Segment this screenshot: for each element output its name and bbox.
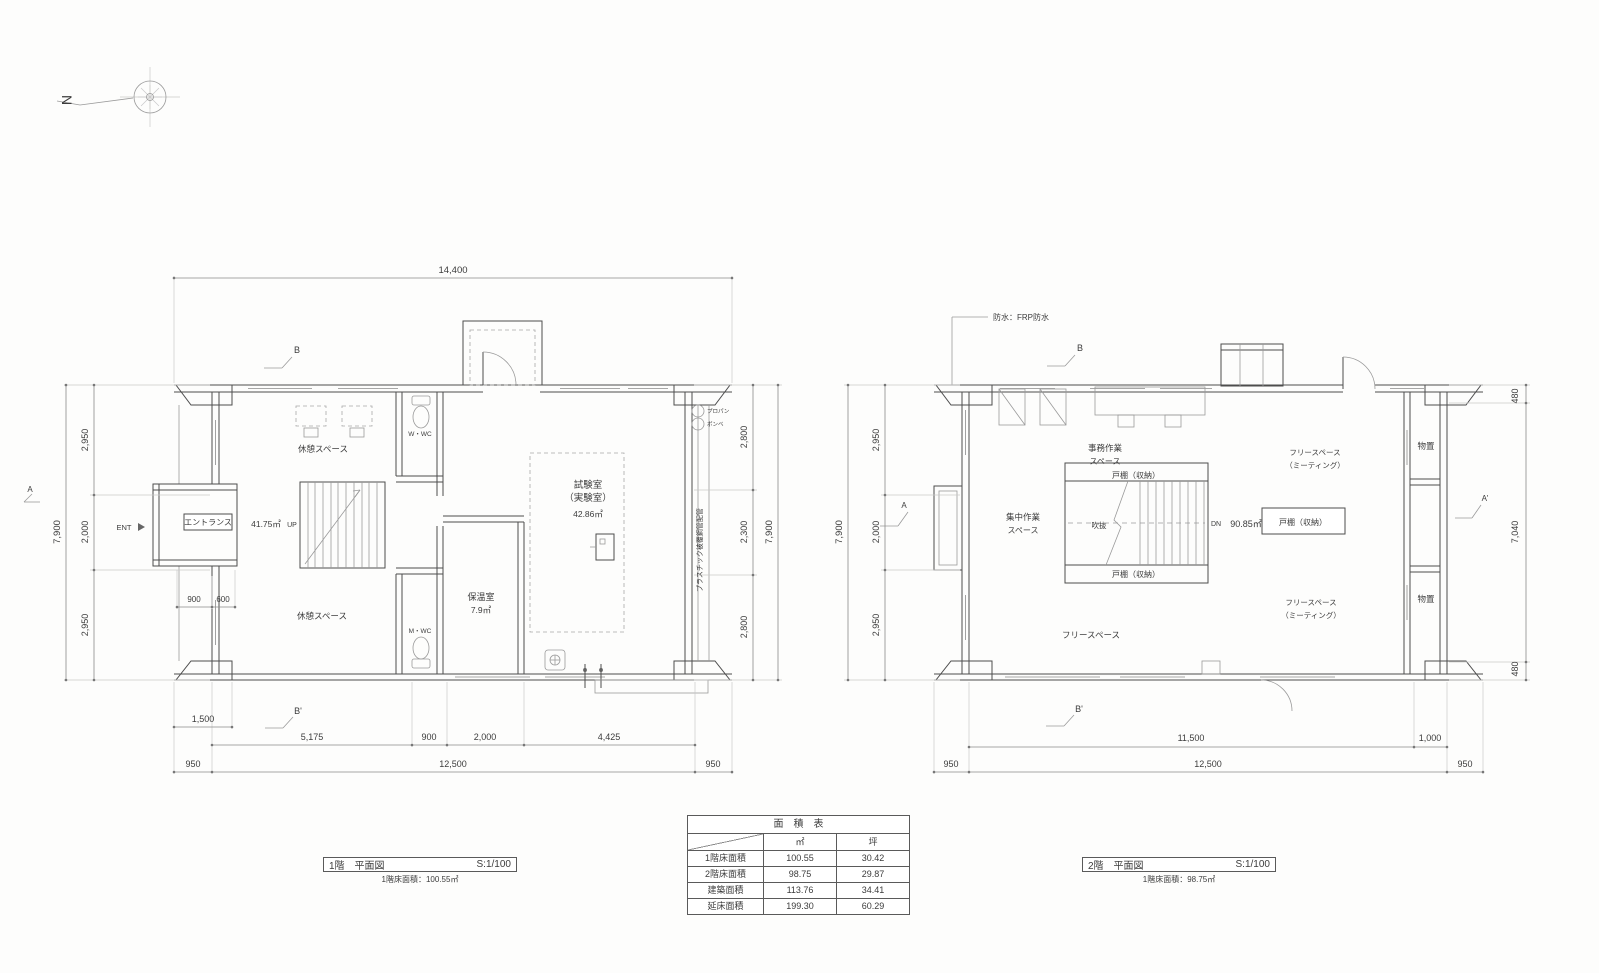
- label-free-meeting-bottom-1: フリースペース: [1285, 598, 1336, 607]
- dim-1f-top: 14,400: [438, 265, 467, 276]
- mark-2f-b-prime: B': [1075, 704, 1083, 714]
- label-propane-2: ボンベ: [707, 420, 724, 428]
- area-table-corner-cell: [688, 834, 763, 850]
- label-wc-w: W・WC: [408, 431, 432, 438]
- plan1f-dim-lines: [64, 276, 782, 774]
- label-office-1: 事務作業: [1088, 443, 1123, 453]
- label-1f-area: 41.75㎡: [251, 519, 281, 529]
- table-row: 建築面積 113.76 34.41: [688, 883, 909, 899]
- mark-2f-a: A: [901, 501, 907, 510]
- row-m2: 199.30: [763, 899, 836, 914]
- dim-1f-right-seg1: 2,800: [739, 426, 749, 449]
- mark-1f-a: A: [27, 485, 33, 494]
- label-lab-area: 42.86㎡: [573, 509, 603, 519]
- plan-1f: 14,400 7,900 2,950 2,000 2,950 2,800 2,3…: [24, 265, 782, 774]
- label-storage-bottom: 物置: [1417, 594, 1435, 604]
- label-up: UP: [287, 522, 297, 529]
- dim-1f-right-seg3: 2,800: [739, 616, 749, 639]
- plan2f-furniture: [999, 387, 1205, 427]
- label-storage-top: 物置: [1417, 441, 1435, 451]
- plan1f-walls: [174, 385, 732, 680]
- dim-1f-porch: 1,500: [192, 714, 215, 724]
- north-compass-icon: N: [57, 67, 180, 127]
- label-focus-1: 集中作業: [1006, 512, 1041, 522]
- plan2f-scale: S:1/100: [1236, 859, 1270, 870]
- plan-2f: 防水：FRP防水 B B' A A' 7,900 2,950 2,000 2,9…: [834, 312, 1530, 774]
- plan1f-title: 1階 平面図: [329, 857, 385, 872]
- label-warm-room: 保温室: [467, 591, 494, 602]
- mark-1f-b: B: [294, 345, 300, 355]
- label-office-2: スペース: [1089, 457, 1120, 466]
- row-tsubo: 30.42: [836, 851, 909, 866]
- plan1f-eave-lines: [179, 405, 709, 661]
- mark-2f-b: B: [1077, 343, 1083, 353]
- dim-1f-bottom-seg2: 900: [421, 732, 436, 742]
- dim-2f-left-seg1: 2,950: [871, 429, 881, 452]
- plan1f-scale: S:1/100: [477, 859, 511, 870]
- label-free-meeting-top-1: フリースペース: [1289, 448, 1340, 457]
- plan1f-stairs: [300, 482, 385, 568]
- label-free-space: フリースペース: [1062, 630, 1120, 640]
- dim-2f-left-total: 7,900: [834, 520, 845, 544]
- label-ent: ENT: [117, 523, 132, 532]
- table-row: 1階床面積 100.55 30.42: [688, 851, 909, 867]
- label-wc-m: M・WC: [409, 628, 432, 635]
- label-dn: DN: [1211, 521, 1221, 528]
- dim-1f-ent-seg2: 600: [216, 595, 230, 604]
- dim-1f-left-seg3: 2,950: [80, 614, 90, 637]
- drawing-sheet: N: [0, 0, 1599, 973]
- label-rest-bottom: 休憩スペース: [297, 611, 347, 621]
- dim-1f-eave-left: 950: [185, 759, 200, 769]
- mark-2f-a-prime: A': [1482, 494, 1489, 503]
- plan1f-furniture: [296, 406, 372, 437]
- table-row: 2階床面積 98.75 29.87: [688, 867, 909, 883]
- note-waterproof: 防水：FRP防水: [993, 312, 1049, 322]
- table-row: 延床面積 199.30 60.29: [688, 899, 909, 914]
- toilet-w-icon: [412, 396, 430, 428]
- row-label: 延床面積: [688, 899, 763, 914]
- dim-1f-eave-right: 950: [705, 759, 720, 769]
- label-propane-1: プロパン: [707, 408, 730, 415]
- plan2f-balcony: [1221, 344, 1283, 386]
- dim-1f-right-seg2: 2,300: [739, 521, 749, 544]
- label-free-meeting-top-2: （ミーティング）: [1285, 460, 1345, 470]
- area-table-col-tsubo: 坪: [836, 834, 909, 850]
- row-label: 1階床面積: [688, 851, 763, 866]
- dim-1f-right-total: 7,900: [764, 520, 775, 544]
- dim-2f-left-seg2: 2,000: [871, 521, 881, 544]
- area-table-title: 面 積 表: [688, 816, 909, 834]
- row-tsubo: 34.41: [836, 883, 909, 898]
- row-tsubo: 29.87: [836, 867, 909, 882]
- label-lab-2: （実験室）: [564, 492, 612, 504]
- dim-1f-left-seg2: 2,000: [80, 521, 90, 544]
- plan1f-lab-fixtures: [530, 453, 708, 693]
- dim-1f-left-seg1: 2,950: [80, 429, 90, 452]
- dim-2f-right-seg3: 480: [1510, 661, 1520, 676]
- plan2f-title-box: 2階 平面図 S:1/100: [1082, 857, 1276, 872]
- label-void: 吹抜: [1092, 520, 1108, 530]
- dim-2f-bottom-total: 12,500: [1194, 759, 1222, 769]
- label-entrance: エントランス: [184, 518, 232, 527]
- row-m2: 98.75: [763, 867, 836, 882]
- dim-2f-right-seg2: 7,040: [1510, 521, 1520, 544]
- dim-2f-bottom-seg1: 11,500: [1178, 733, 1205, 743]
- dim-2f-left-seg3: 2,950: [871, 614, 881, 637]
- label-lab-1: 試験室: [574, 479, 603, 491]
- label-free-meeting-bottom-2: （ミーティング）: [1281, 610, 1341, 620]
- label-cupboard-top: 戸棚（収納）: [1112, 470, 1160, 480]
- area-table-header: ㎡ 坪: [688, 834, 909, 851]
- row-label: 建築面積: [688, 883, 763, 898]
- label-warm-area: 7.9㎡: [471, 605, 492, 615]
- ent-arrow-icon: [138, 523, 145, 531]
- dim-2f-right-seg1: 480: [1510, 388, 1520, 403]
- plan1f-windows: [216, 389, 669, 678]
- label-2f-area: 90.85㎡: [1230, 519, 1262, 529]
- plan2f-subtitle: 1階床面積：98.75㎡: [1082, 874, 1276, 885]
- dim-1f-bottom-total: 12,500: [439, 759, 467, 769]
- area-table: 面 積 表 ㎡ 坪 1階床面積 100.55 30.42 2階床面積 98.75…: [687, 815, 910, 915]
- dim-2f-eave-right: 950: [1457, 759, 1472, 769]
- plan1f-title-box: 1階 平面図 S:1/100: [323, 857, 517, 872]
- row-m2: 100.55: [763, 851, 836, 866]
- row-m2: 113.76: [763, 883, 836, 898]
- mark-1f-b-prime: B': [294, 706, 302, 716]
- dim-1f-ent-seg1: 900: [187, 595, 201, 604]
- dim-1f-bottom-seg1: 5,175: [301, 732, 324, 742]
- label-pipe-note: プラスチック被覆鋼管配管: [695, 508, 704, 592]
- north-label: N: [59, 95, 75, 105]
- label-cupboard-right: 戸棚（収納）: [1279, 517, 1327, 527]
- label-focus-2: スペース: [1007, 526, 1038, 535]
- dim-2f-eave-left: 950: [943, 759, 958, 769]
- label-rest-top: 休憩スペース: [298, 444, 348, 454]
- label-cupboard-bottom: 戸棚（収納）: [1112, 569, 1160, 579]
- dim-2f-bottom-seg2: 1,000: [1419, 733, 1442, 743]
- plan2f-note-leader: [952, 317, 988, 385]
- plan2f-section-marks: [880, 355, 1481, 726]
- row-tsubo: 60.29: [836, 899, 909, 914]
- toilet-m-icon: [412, 637, 430, 668]
- dim-1f-bottom-seg4: 4,425: [598, 732, 621, 742]
- dim-1f-bottom-seg3: 2,000: [474, 732, 497, 742]
- dim-1f-left-total: 7,900: [52, 520, 63, 544]
- area-table-col-m2: ㎡: [763, 834, 836, 850]
- plan1f-top-porch: [463, 321, 542, 385]
- plan1f-subtitle: 1階床面積：100.55㎡: [323, 874, 517, 885]
- row-label: 2階床面積: [688, 867, 763, 882]
- plan2f-title: 2階 平面図: [1088, 857, 1144, 872]
